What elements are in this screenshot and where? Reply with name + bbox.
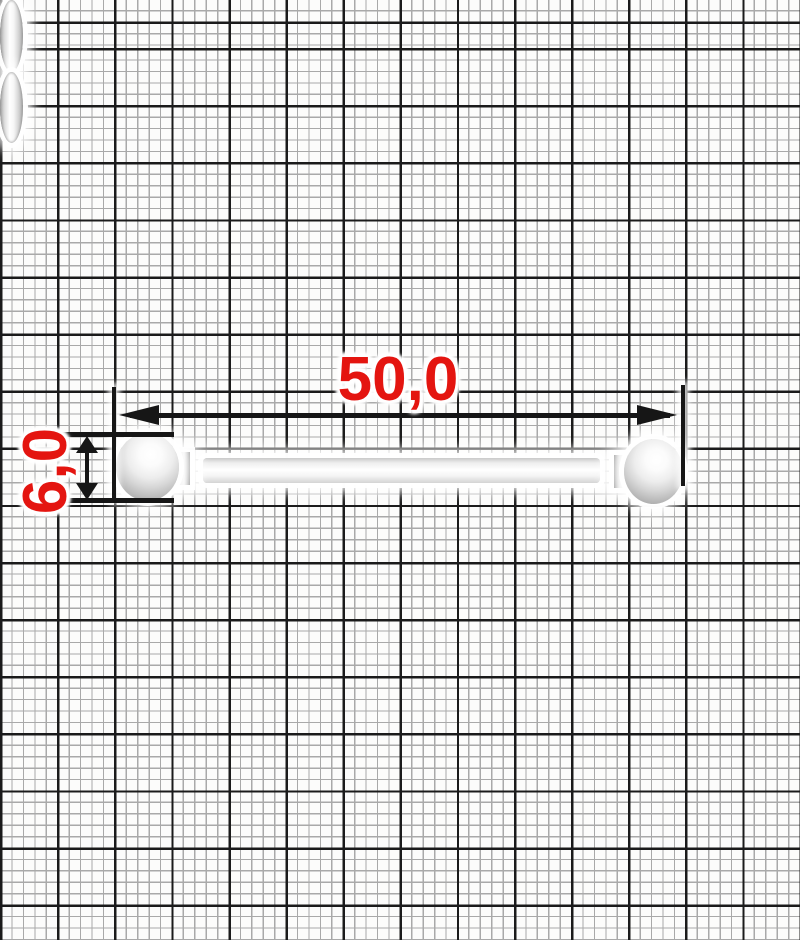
left-washer (0, 0, 23, 72)
arrowhead-right-icon (637, 405, 677, 425)
diameter-label: 6,0 (15, 428, 77, 514)
arrowhead-left-icon (119, 405, 159, 425)
length-extension-line-right (681, 385, 685, 486)
length-label: 50,0 (338, 349, 459, 411)
shaft (203, 458, 600, 483)
barbell (0, 0, 800, 143)
graph-paper: 50,0 6,0 (0, 0, 800, 940)
diameter-arrow-shaft (85, 452, 89, 484)
length-extension-line-left (112, 387, 116, 500)
right-ball (624, 439, 683, 504)
right-washer (0, 72, 23, 143)
left-ball (116, 433, 179, 501)
